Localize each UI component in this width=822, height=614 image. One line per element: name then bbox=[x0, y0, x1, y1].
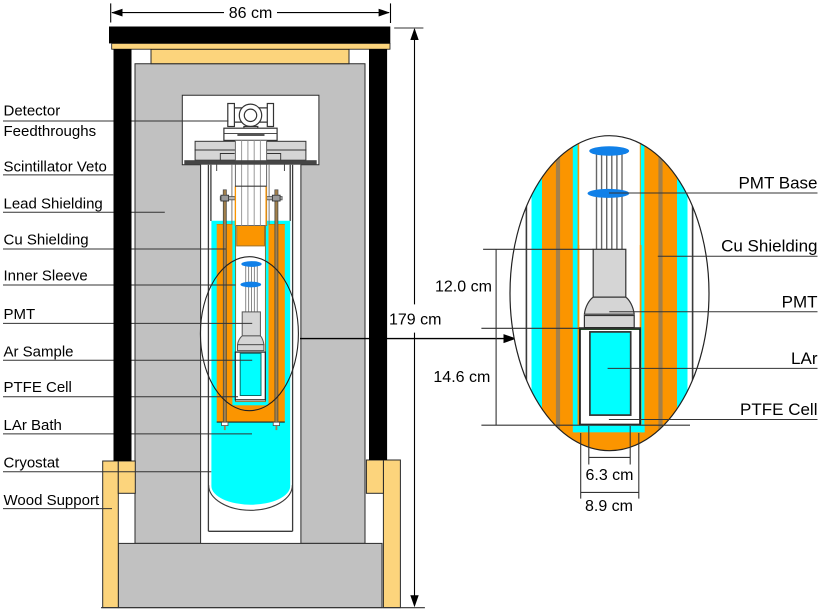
svg-text:179 cm: 179 cm bbox=[389, 312, 441, 329]
svg-text:Ar Sample: Ar Sample bbox=[4, 343, 74, 360]
svg-text:86 cm: 86 cm bbox=[229, 5, 273, 22]
svg-text:Cryostat: Cryostat bbox=[4, 455, 61, 472]
svg-text:Inner Sleeve: Inner Sleeve bbox=[4, 268, 88, 285]
svg-text:6.3 cm: 6.3 cm bbox=[585, 467, 633, 484]
svg-text:PMT: PMT bbox=[4, 306, 36, 323]
svg-text:PMT Base: PMT Base bbox=[738, 174, 817, 193]
svg-text:Scintillator Veto: Scintillator Veto bbox=[4, 158, 107, 175]
svg-text:12.0 cm: 12.0 cm bbox=[435, 279, 492, 296]
svg-text:8.9 cm: 8.9 cm bbox=[585, 498, 633, 515]
svg-text:14.6 cm: 14.6 cm bbox=[433, 369, 490, 386]
svg-text:LAr Bath: LAr Bath bbox=[4, 417, 62, 434]
svg-text:Wood Support: Wood Support bbox=[4, 492, 100, 509]
svg-text:LAr: LAr bbox=[791, 349, 818, 368]
svg-text:Detector: Detector bbox=[4, 103, 61, 120]
svg-text:PTFE Cell: PTFE Cell bbox=[740, 400, 817, 419]
svg-text:Feedthroughs: Feedthroughs bbox=[4, 123, 97, 140]
svg-text:Lead Shielding: Lead Shielding bbox=[4, 195, 103, 212]
svg-text:PTFE Cell: PTFE Cell bbox=[4, 379, 72, 396]
svg-text:Cu Shielding: Cu Shielding bbox=[4, 232, 89, 249]
svg-text:Cu Shielding: Cu Shielding bbox=[721, 237, 817, 256]
svg-text:PMT: PMT bbox=[782, 292, 818, 311]
